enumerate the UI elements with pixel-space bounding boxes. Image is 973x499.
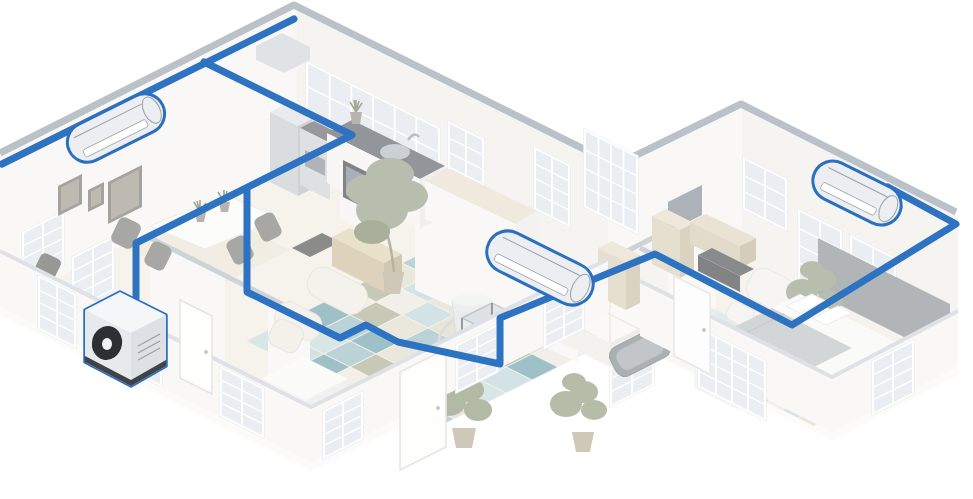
island-plant-pot	[350, 112, 362, 124]
isometric-scene	[0, 0, 973, 499]
floor-lamp-shade-top	[452, 294, 492, 306]
plant-pot	[452, 428, 476, 448]
side-door	[180, 300, 212, 394]
fridge-front	[270, 112, 298, 196]
window-mullion	[764, 170, 766, 219]
door-knob	[702, 328, 706, 332]
kitchen-sink	[380, 144, 410, 160]
door-knob	[436, 406, 440, 410]
door-knob	[204, 350, 208, 354]
fan-hub	[102, 338, 112, 350]
floorplan-hvac-illustration	[0, 0, 973, 499]
hall-door	[674, 276, 710, 374]
